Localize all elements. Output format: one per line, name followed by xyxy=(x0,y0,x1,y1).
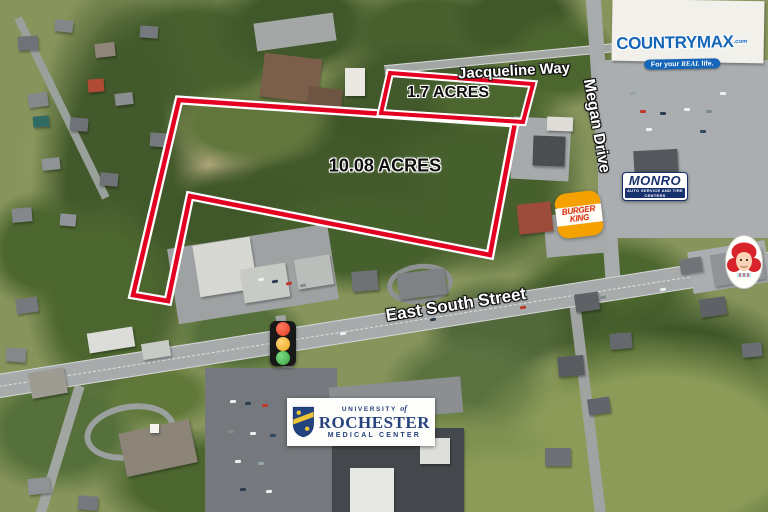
wendys-logo xyxy=(724,234,764,290)
rochester-line-university: UNIVERSITY of xyxy=(319,405,430,414)
countrymax-domain-suffix: .com xyxy=(733,39,747,45)
parcel-label-small-acreage: 1.7 ACRES xyxy=(407,84,489,102)
rochester-wordmark: ROCHESTER xyxy=(319,414,430,431)
traffic-light-icon xyxy=(270,321,296,366)
countrymax-tagline: For your REAL life. xyxy=(644,58,721,69)
rochester-shield-icon xyxy=(292,403,315,441)
aerial-property-map: Jacqueline Way 1.7 ACRES 10.08 ACRES Meg… xyxy=(0,0,768,512)
countrymax-wordmark: COUNTRYMAX xyxy=(616,32,734,53)
monro-tagline: AUTO SERVICE AND TIRE CENTERS xyxy=(625,188,685,198)
monro-logo: MONRO AUTO SERVICE AND TIRE CENTERS xyxy=(622,172,688,201)
monro-wordmark: MONRO xyxy=(625,174,685,187)
burger-king-logo: BURGER KING xyxy=(553,189,604,239)
property-boundary-large xyxy=(133,100,515,301)
parcel-label-large-acreage: 10.08 ACRES xyxy=(329,156,441,177)
rochester-medical-center-logo: UNIVERSITY of ROCHESTER MEDICAL CENTER xyxy=(287,398,435,446)
rochester-line-medical-center: MEDICAL CENTER xyxy=(319,432,430,439)
wendys-girl-icon xyxy=(724,234,764,290)
countrymax-logo: COUNTRYMAX.com For your REAL life. xyxy=(612,32,753,72)
traffic-light-red xyxy=(276,322,290,336)
traffic-light-amber xyxy=(276,337,290,351)
traffic-light-green xyxy=(276,351,290,365)
